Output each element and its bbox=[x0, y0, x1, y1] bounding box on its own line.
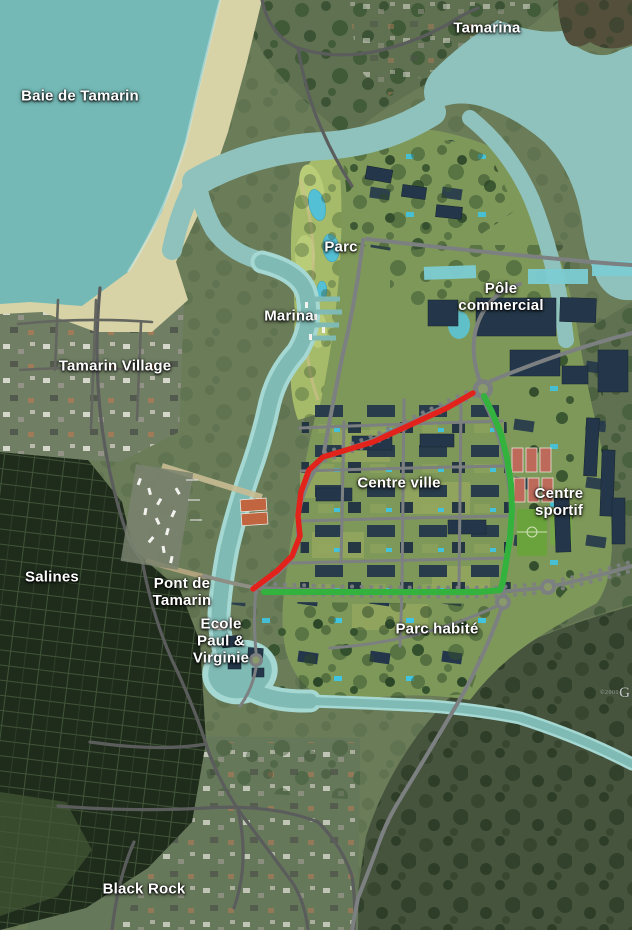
aerial-map-image bbox=[0, 0, 632, 930]
label-centre-ville: Centre ville bbox=[357, 475, 440, 492]
roundabout-south bbox=[495, 594, 511, 610]
roundabout-east bbox=[540, 579, 556, 595]
label-marina: Marina bbox=[264, 308, 314, 325]
label-parc: Parc bbox=[324, 239, 357, 256]
map-canvas: Tamarina Baie de Tamarin Parc Marina Pôl… bbox=[0, 0, 632, 930]
label-ecole-paul-virginie: Ecole Paul & Virginie bbox=[193, 616, 249, 667]
label-centre-sportif: Centre sportif bbox=[535, 485, 584, 519]
roundabout-ecole bbox=[249, 653, 263, 667]
label-parc-habite: Parc habité bbox=[395, 621, 478, 638]
map-watermark: ©2009G bbox=[600, 685, 630, 702]
label-tamarin-village: Tamarin Village bbox=[59, 358, 172, 375]
label-salines: Salines bbox=[25, 569, 79, 586]
label-tamarina: Tamarina bbox=[453, 20, 520, 37]
label-pont-de-tamarin: Pont de Tamarin bbox=[153, 575, 212, 609]
label-black-rock: Black Rock bbox=[103, 881, 186, 898]
label-pole-commercial: Pôle commercial bbox=[458, 280, 543, 314]
label-baie-de-tamarin: Baie de Tamarin bbox=[21, 88, 139, 105]
